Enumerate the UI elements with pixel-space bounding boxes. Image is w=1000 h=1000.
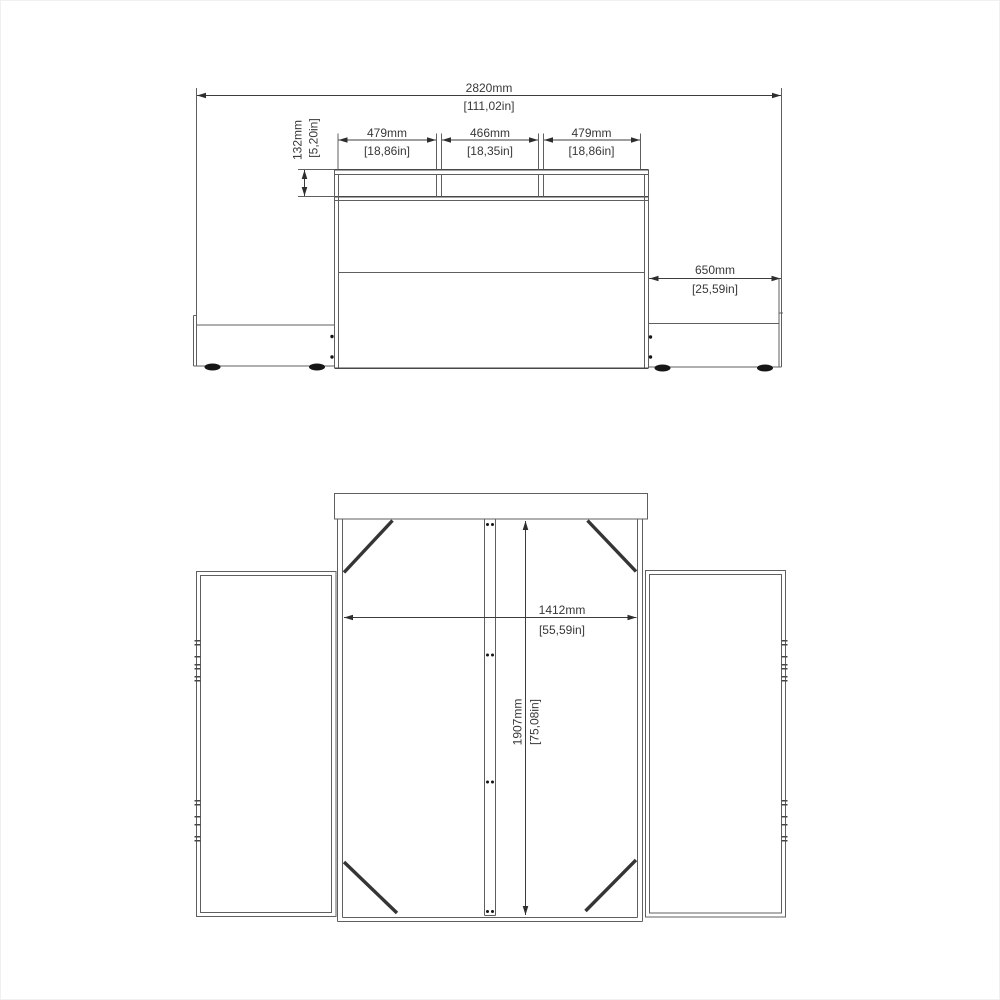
corner-brace-top-left (344, 521, 393, 573)
screw-dot (486, 910, 489, 913)
foot (655, 365, 671, 372)
screw-dot (491, 910, 494, 913)
compartment-1-in-label: [18,86in] (364, 144, 410, 158)
corner-brace-bottom-left (344, 862, 397, 913)
dim-inner-depth: 1907mm [75,08in] (511, 521, 542, 915)
screw-dot (330, 355, 333, 358)
left-drawer-unit (194, 316, 335, 371)
top-view: 1412mm [55,59in] 1907mm [75,08in] (195, 494, 788, 922)
left-side-panel (195, 572, 337, 917)
compartment-2-in-label: [18,35in] (467, 144, 513, 158)
panel-outline (646, 571, 786, 918)
foot (757, 365, 773, 372)
shelf-height-mm-label: 132mm (291, 120, 305, 160)
dim-shelf-height: 132mm [5,20in] (291, 118, 335, 196)
panel-inner-outline (650, 575, 782, 914)
screw-dot (491, 654, 494, 657)
screw-dot (486, 523, 489, 526)
corner-brace-top-right (588, 521, 637, 572)
panel-inner-outline (201, 576, 332, 913)
screw-dot (649, 335, 652, 338)
screw-dot (649, 355, 652, 358)
right-side-panel (646, 571, 788, 918)
shelf-height-in-label: [5,20in] (307, 118, 321, 157)
right-unit-mm-label: 650mm (695, 263, 735, 277)
screw-dot (486, 781, 489, 784)
compartment-2-mm-label: 466mm (470, 126, 510, 140)
screw-dot (486, 654, 489, 657)
inner-width-mm-label: 1412mm (539, 603, 586, 617)
screw-dot (491, 523, 494, 526)
dim-shelf-compartments: 479mm [18,86in] 466mm [18,35in] 479mm [1… (338, 126, 641, 170)
dim-overall-width: 2820mm [111,02in] (197, 81, 782, 367)
compartment-1-mm-label: 479mm (367, 126, 407, 140)
screw-dot (330, 335, 333, 338)
overall-width-in-label: [111,02in] (464, 99, 515, 113)
right-drawer-unit: 650mm [25,59in] (649, 263, 784, 372)
foot (309, 364, 325, 371)
overall-width-mm-label: 2820mm (466, 81, 513, 95)
dim-inner-width: 1412mm [55,59in] (344, 603, 637, 637)
headboard-plan (335, 494, 648, 520)
panel-outline (197, 572, 337, 917)
foot (205, 364, 221, 371)
inner-width-in-label: [55,59in] (539, 623, 585, 637)
front-view: 2820mm [111,02in] (194, 81, 784, 372)
corner-brace-bottom-right (586, 860, 637, 911)
screw-dot (491, 781, 494, 784)
inner-depth-in-label: [75,08in] (528, 699, 542, 745)
compartment-3-in-label: [18,86in] (568, 144, 614, 158)
right-unit-in-label: [25,59in] (692, 282, 738, 296)
headboard-front (335, 170, 649, 369)
compartment-3-mm-label: 479mm (571, 126, 611, 140)
inner-depth-mm-label: 1907mm (511, 699, 525, 746)
bed-frame (338, 519, 643, 922)
furniture-dimension-diagram: 2820mm [111,02in] (0, 0, 1000, 1000)
technical-drawing-page: 2820mm [111,02in] (0, 0, 1000, 1000)
